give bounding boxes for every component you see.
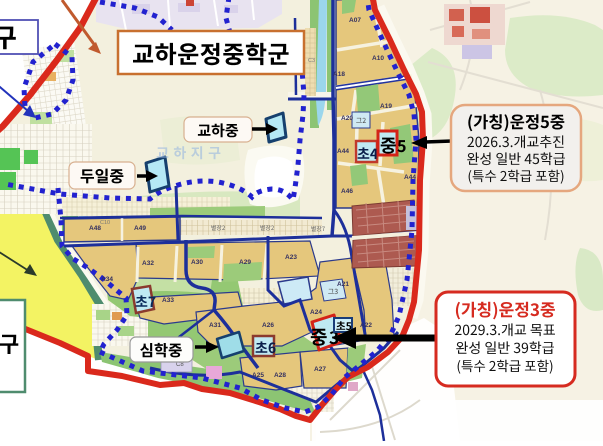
svg-text:A28: A28 — [274, 372, 286, 379]
svg-text:A27: A27 — [314, 366, 326, 373]
svg-text:A24: A24 — [310, 309, 322, 316]
svg-text:A23: A23 — [285, 254, 297, 261]
svg-text:A44: A44 — [337, 148, 349, 155]
svg-text:A21: A21 — [337, 281, 349, 288]
svg-text:A10: A10 — [372, 55, 384, 62]
svg-text:A22: A22 — [360, 322, 372, 329]
svg-text:A26: A26 — [262, 322, 274, 329]
svg-text:A18: A18 — [333, 71, 345, 78]
svg-text:A25: A25 — [252, 372, 264, 379]
svg-text:A49: A49 — [134, 225, 146, 232]
svg-text:A46: A46 — [341, 188, 353, 195]
svg-text:A19: A19 — [380, 103, 392, 110]
svg-text:A30: A30 — [191, 259, 203, 266]
svg-text:C8: C8 — [176, 362, 184, 368]
svg-text:A33: A33 — [162, 297, 174, 304]
svg-text:A34: A34 — [101, 276, 113, 283]
svg-text:C3: C3 — [308, 58, 315, 64]
svg-text:A20: A20 — [341, 115, 353, 122]
svg-text:A31: A31 — [209, 322, 221, 329]
svg-text:A44: A44 — [404, 174, 416, 181]
svg-text:A07: A07 — [349, 17, 361, 24]
svg-text:A48: A48 — [89, 225, 101, 232]
svg-text:A29: A29 — [239, 259, 251, 266]
svg-text:A32: A32 — [142, 260, 154, 267]
svg-text:C10: C10 — [100, 220, 110, 226]
